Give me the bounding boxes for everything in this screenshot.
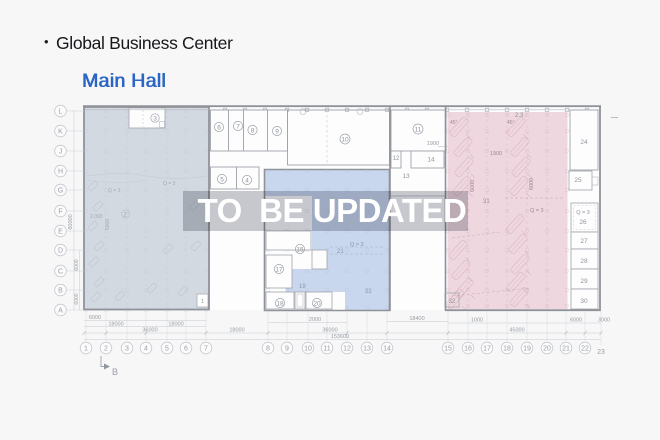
svg-text:15: 15 [296,247,304,254]
svg-text:15: 15 [444,346,452,353]
svg-text:6000: 6000 [74,293,80,304]
svg-text:6000: 6000 [529,178,535,190]
svg-text:Q = 3: Q = 3 [576,210,590,216]
svg-text:7: 7 [236,124,240,131]
svg-text:8: 8 [266,346,270,353]
svg-text:28: 28 [580,258,588,265]
svg-text:J: J [59,149,63,156]
svg-text:3000: 3000 [598,318,610,324]
svg-text:24: 24 [580,139,588,146]
svg-text:6: 6 [217,125,221,132]
svg-text:1000: 1000 [471,318,483,324]
svg-text:12: 12 [393,156,400,162]
svg-text:45000: 45000 [509,328,524,334]
svg-text:2: 2 [104,346,108,353]
svg-text:B: B [58,288,63,295]
svg-text:11: 11 [415,127,422,134]
svg-text:Q = 3: Q = 3 [163,181,176,187]
svg-text:17: 17 [483,346,491,353]
svg-text:18: 18 [503,346,511,353]
svg-text:K: K [58,129,63,136]
svg-text:18000: 18000 [168,322,183,328]
svg-text:13: 13 [363,346,371,353]
svg-text:2.093: 2.093 [90,214,103,220]
svg-text:7: 7 [204,346,208,353]
svg-text:Q = 3: Q = 3 [108,188,121,194]
svg-text:1900: 1900 [490,151,502,157]
svg-text:31: 31 [483,199,490,205]
svg-text:F: F [58,209,62,216]
svg-text:B: B [112,367,118,377]
svg-text:E: E [58,229,63,236]
svg-text:13: 13 [402,173,410,180]
svg-text:Q = 3: Q = 3 [530,208,544,214]
svg-text:22: 22 [581,346,589,353]
svg-text:G: G [58,188,63,195]
svg-text:45°: 45° [450,120,458,126]
svg-text:2000: 2000 [309,317,321,323]
svg-text:2.3: 2.3 [515,113,524,119]
svg-text:8: 8 [251,128,255,135]
svg-text:5: 5 [220,177,224,184]
svg-text:17: 17 [275,267,283,274]
svg-text:6000: 6000 [470,180,476,192]
svg-text:18000: 18000 [229,328,244,334]
svg-text:20: 20 [313,301,321,308]
svg-text:L: L [59,109,63,116]
svg-text:16: 16 [464,346,472,353]
svg-text:26: 26 [579,219,587,226]
svg-text:18400: 18400 [409,316,424,322]
svg-text:30: 30 [580,298,588,305]
svg-text:29: 29 [580,278,588,285]
svg-text:14: 14 [427,157,435,164]
svg-text:153600: 153600 [331,334,349,340]
svg-text:18: 18 [276,301,284,308]
svg-text:D: D [58,248,63,255]
svg-text:36000: 36000 [322,328,337,334]
svg-text:H: H [58,169,63,176]
svg-text:14: 14 [383,346,391,353]
svg-text:45°: 45° [507,120,515,126]
svg-text:C: C [58,269,63,276]
svg-text:4: 4 [245,178,249,185]
svg-text:6: 6 [184,346,188,353]
svg-text:19: 19 [299,284,306,290]
svg-text:21: 21 [562,346,570,353]
svg-text:10: 10 [304,346,312,353]
svg-text:23: 23 [597,349,605,356]
svg-text:20: 20 [543,346,551,353]
svg-text:11: 11 [323,346,330,353]
svg-text:60000: 60000 [68,214,74,229]
svg-text:32: 32 [449,299,456,305]
svg-text:9: 9 [275,129,279,136]
svg-text:22: 22 [365,289,372,295]
svg-text:25: 25 [574,177,582,184]
svg-text:36000: 36000 [142,328,157,334]
svg-text:10: 10 [341,137,349,144]
svg-text:1: 1 [201,299,204,305]
svg-text:4: 4 [144,346,148,353]
svg-text:18000: 18000 [108,322,123,328]
svg-text:9: 9 [285,346,289,353]
svg-text:5: 5 [165,346,169,353]
svg-text:1900: 1900 [427,141,439,147]
svg-text:12: 12 [343,346,351,353]
svg-text:6000: 6000 [89,315,101,321]
svg-text:3: 3 [125,346,129,353]
svg-text:1: 1 [84,346,88,353]
svg-text:A: A [58,308,63,315]
svg-text:3: 3 [153,116,157,123]
svg-text:27: 27 [580,238,588,245]
svg-text:6000: 6000 [570,318,582,324]
svg-text:5000: 5000 [105,219,111,230]
svg-text:19: 19 [523,346,531,353]
svg-text:6000: 6000 [74,259,80,270]
